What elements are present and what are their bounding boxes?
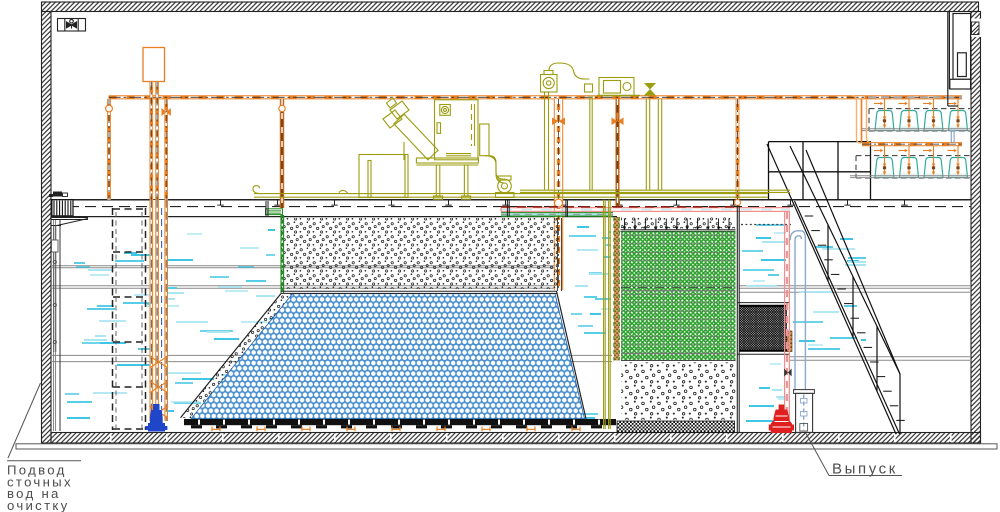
svg-text:Выпуск: Выпуск [832,461,898,478]
svg-text:очистку: очистку [7,498,70,512]
